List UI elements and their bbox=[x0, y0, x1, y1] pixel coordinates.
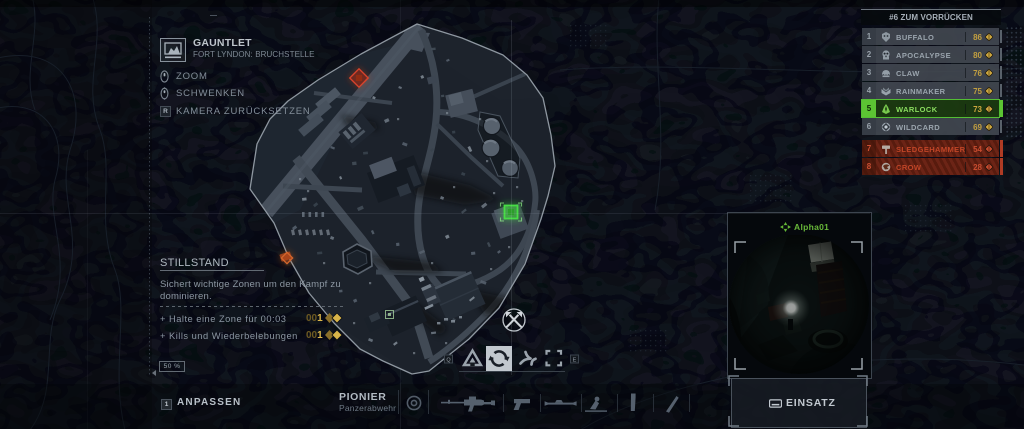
svg-text:E: E bbox=[573, 357, 577, 363]
svg-text:Q: Q bbox=[446, 357, 451, 363]
